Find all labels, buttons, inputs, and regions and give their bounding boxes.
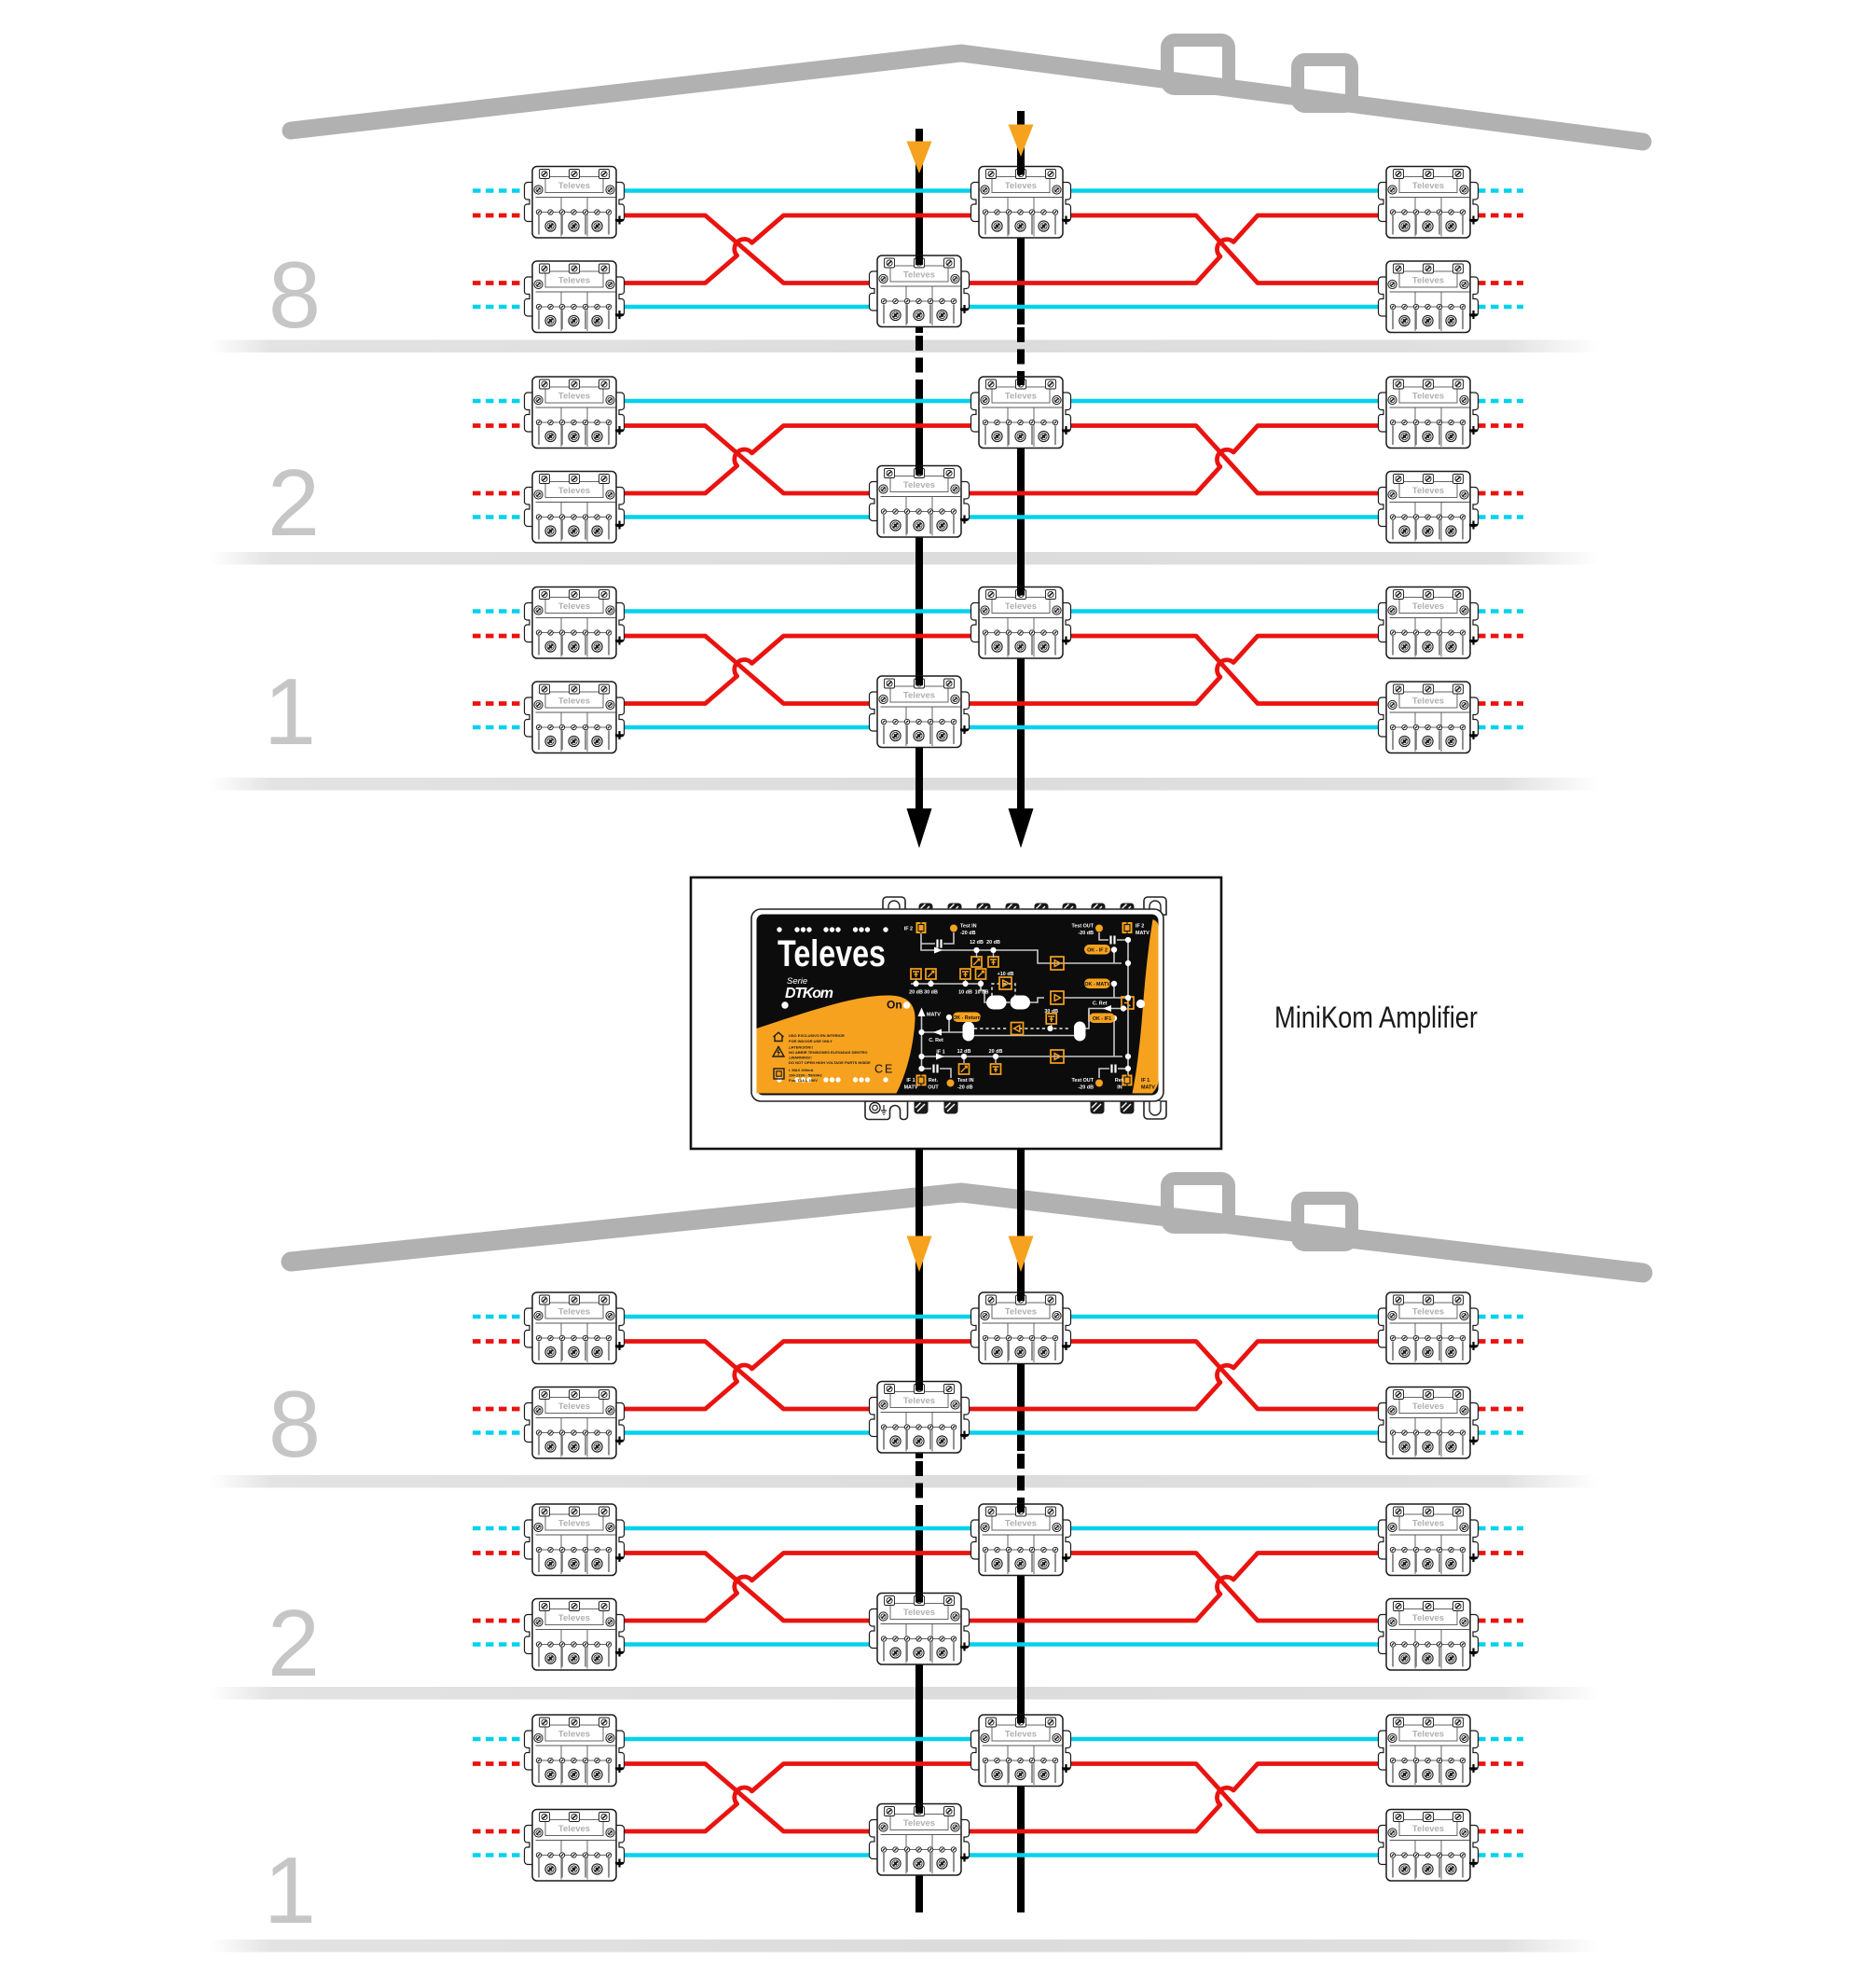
svg-text:Ret.: Ret. xyxy=(929,1078,939,1084)
svg-text:IF 2: IF 2 xyxy=(1136,924,1144,930)
svg-text:MiniKom Amplifier: MiniKom Amplifier xyxy=(1274,1001,1478,1034)
svg-text:10 dB: 10 dB xyxy=(958,990,972,996)
svg-text:-20 dB: -20 dB xyxy=(1079,1085,1094,1091)
svg-text:CE: CE xyxy=(874,1063,894,1076)
svg-text:Test IN: Test IN xyxy=(960,924,977,930)
svg-text:+10 dB: +10 dB xyxy=(998,972,1014,977)
svg-text:IN: IN xyxy=(1117,1085,1122,1091)
svg-text:2: 2 xyxy=(268,451,320,556)
svg-text:20 dB: 20 dB xyxy=(909,990,923,996)
svg-text:C. Ret: C. Ret xyxy=(1093,1001,1108,1007)
svg-text:10 dB: 10 dB xyxy=(975,990,989,996)
svg-text:20 dB: 20 dB xyxy=(986,940,1000,946)
svg-text:196-233V~ 50/60Hz: 196-233V~ 50/60Hz xyxy=(789,1073,822,1078)
svg-text:FOR INDOOR USE ONLY: FOR INDOOR USE ONLY xyxy=(789,1039,833,1043)
svg-text:IF 2: IF 2 xyxy=(904,927,913,932)
svg-text:30 dB: 30 dB xyxy=(924,990,938,996)
svg-text:Televes: Televes xyxy=(778,933,886,974)
svg-text:-20 dB: -20 dB xyxy=(960,931,976,936)
svg-text:DO NOT OPEN HIGH VOLTAGE PARTS: DO NOT OPEN HIGH VOLTAGE PARTS INSIDE xyxy=(789,1060,871,1065)
svg-text:USO EXCLUSIVO EN INTERIOR: USO EXCLUSIVO EN INTERIOR xyxy=(789,1033,845,1038)
svg-text:OK - IF1: OK - IF1 xyxy=(1093,1016,1111,1022)
svg-text:MATV: MATV xyxy=(1141,1085,1155,1091)
svg-text:20 dB: 20 dB xyxy=(989,1049,1003,1055)
svg-text:-20 dB: -20 dB xyxy=(1079,931,1094,936)
svg-text:12 dB: 12 dB xyxy=(957,1049,971,1055)
svg-text:OK - IF 2: OK - IF 2 xyxy=(1087,948,1108,954)
svg-text:-20 dB: -20 dB xyxy=(957,1085,973,1091)
svg-text:OK - MATV: OK - MATV xyxy=(1084,982,1110,987)
svg-text:IF 1: IF 1 xyxy=(1141,1078,1149,1084)
svg-text:OUT: OUT xyxy=(928,1085,939,1091)
svg-text:1: 1 xyxy=(264,1839,316,1943)
svg-text:30 dB: 30 dB xyxy=(1044,1009,1058,1015)
svg-text:Test OUT: Test OUT xyxy=(1071,924,1094,930)
svg-text:Test IN: Test IN xyxy=(957,1078,974,1084)
svg-text:MATV: MATV xyxy=(904,1085,918,1091)
svg-text:¡¡WARNING!!: ¡¡WARNING!! xyxy=(789,1056,812,1060)
svg-text:DTKom: DTKom xyxy=(785,986,833,1001)
svg-text:I. MAX 200mA: I. MAX 200mA xyxy=(789,1068,814,1072)
svg-text:On: On xyxy=(887,999,902,1012)
svg-text:12 dB: 12 dB xyxy=(970,940,984,946)
svg-text:Fus: T1A L 250V: Fus: T1A L 250V xyxy=(789,1078,818,1083)
svg-text:C. Ret: C. Ret xyxy=(929,1038,943,1043)
svg-text:8: 8 xyxy=(268,1373,321,1477)
svg-text:Ret.: Ret. xyxy=(1115,1078,1125,1084)
svg-text:Test OUT: Test OUT xyxy=(1071,1078,1094,1084)
svg-text:IF 1: IF 1 xyxy=(906,1078,915,1084)
svg-text:¡¡ATENCIÓN!!: ¡¡ATENCIÓN!! xyxy=(789,1045,813,1050)
svg-text:MATV: MATV xyxy=(927,1013,941,1018)
svg-text:1: 1 xyxy=(264,660,316,765)
svg-text:2: 2 xyxy=(268,1592,320,1696)
svg-text:NO ABRIR TENSIONES ELEVADAS DE: NO ABRIR TENSIONES ELEVADAS DENTRO xyxy=(789,1050,867,1055)
svg-text:OK - Return: OK - Return xyxy=(953,1015,981,1021)
svg-text:MATV: MATV xyxy=(1136,931,1149,936)
svg-text:8: 8 xyxy=(268,243,321,348)
svg-text:IF 1: IF 1 xyxy=(936,1050,944,1056)
